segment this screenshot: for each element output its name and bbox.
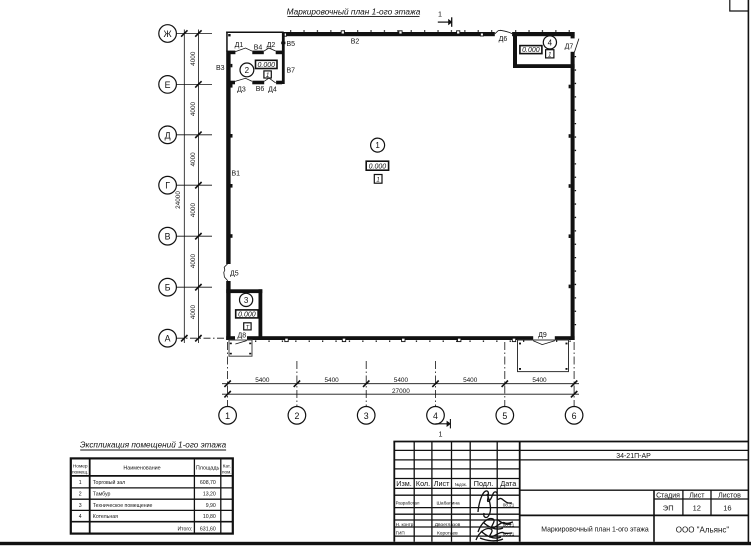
svg-text:2: 2 [79, 492, 82, 498]
svg-text:4000: 4000 [190, 152, 197, 167]
svg-text:Экспликация помещений 1-ого эт: Экспликация помещений 1-ого этажа [80, 441, 227, 450]
svg-text:10,80: 10,80 [203, 514, 216, 520]
svg-text:3: 3 [364, 411, 369, 421]
svg-text:12: 12 [693, 504, 701, 513]
svg-text:1: 1 [79, 480, 82, 486]
svg-text:помещ.: помещ. [72, 471, 89, 476]
svg-text:1: 1 [375, 141, 380, 150]
svg-text:Д7: Д7 [565, 44, 574, 51]
svg-text:ООО "Альянс": ООО "Альянс" [676, 526, 730, 535]
svg-text:5400: 5400 [463, 377, 478, 384]
svg-text:ГИП: ГИП [396, 531, 405, 536]
svg-text:Г: Г [165, 181, 170, 191]
svg-text:Изм.: Изм. [396, 479, 411, 488]
svg-text:В1: В1 [232, 171, 241, 178]
svg-text:631,60: 631,60 [200, 526, 216, 532]
svg-text:0.000: 0.000 [258, 62, 276, 69]
svg-text:4000: 4000 [190, 51, 197, 66]
svg-text:Площадь: Площадь [196, 466, 220, 472]
svg-text:Наименование: Наименование [123, 466, 160, 472]
svg-text:4000: 4000 [190, 101, 197, 116]
svg-text:Н. контр.: Н. контр. [396, 522, 415, 527]
svg-text:1: 1 [439, 429, 443, 438]
svg-text:1: 1 [438, 9, 442, 18]
svg-text:Д1: Д1 [235, 42, 244, 49]
svg-text:В3: В3 [216, 65, 225, 72]
svg-text:1: 1 [548, 51, 551, 58]
svg-text:4: 4 [79, 514, 82, 520]
svg-text:Е: Е [165, 80, 171, 90]
svg-text:Кол.: Кол. [416, 479, 430, 488]
svg-text:4000: 4000 [190, 305, 197, 320]
svg-text:Д9: Д9 [538, 332, 547, 339]
svg-text:Дата: Дата [500, 479, 516, 488]
svg-text:0.000: 0.000 [522, 47, 540, 54]
svg-text:4: 4 [433, 411, 438, 421]
svg-text:24000: 24000 [175, 191, 182, 209]
svg-text:4: 4 [548, 39, 553, 48]
svg-text:Итого:: Итого: [177, 526, 192, 532]
svg-text:Котельная: Котельная [93, 514, 118, 520]
svg-text:3: 3 [244, 296, 249, 305]
svg-text:Торговый зал: Торговый зал [93, 479, 125, 486]
svg-text:Подл.: Подл. [474, 479, 493, 488]
svg-text:Техническое помещение: Техническое помещение [93, 503, 153, 509]
svg-text:Маркировочный план 1-ого этажа: Маркировочный план 1-ого этажа [541, 526, 649, 534]
svg-text:Номер: Номер [73, 464, 88, 470]
svg-text:2: 2 [245, 66, 250, 75]
svg-text:Тамбур: Тамбур [93, 492, 111, 498]
svg-text:27000: 27000 [392, 388, 410, 395]
svg-text:В7: В7 [287, 68, 296, 75]
svg-text:Стадия: Стадия [656, 492, 680, 499]
svg-text:1: 1 [225, 411, 230, 421]
svg-text:В5: В5 [287, 41, 296, 48]
svg-text:0.000: 0.000 [369, 163, 387, 170]
svg-text:ЭП: ЭП [663, 504, 674, 513]
svg-text:4000: 4000 [190, 254, 197, 269]
svg-text:Маркировочный план 1-ого этажа: Маркировочный план 1-ого этажа [287, 6, 421, 16]
svg-text:Кат.: Кат. [223, 464, 231, 469]
svg-text:Д6: Д6 [499, 36, 508, 43]
svg-text:Т: Т [246, 325, 250, 331]
svg-text:Д: Д [165, 130, 171, 140]
svg-text:Д4: Д4 [268, 87, 277, 94]
svg-text:34-21П-АР: 34-21П-АР [616, 453, 651, 460]
svg-text:5400: 5400 [394, 377, 409, 384]
svg-text:Д3: Д3 [237, 87, 246, 94]
svg-text:608,70: 608,70 [200, 480, 216, 486]
svg-text:В4: В4 [254, 44, 263, 51]
svg-text:3: 3 [79, 503, 82, 509]
svg-text:А: А [165, 334, 171, 344]
svg-text:Шабалина: Шабалина [437, 501, 460, 507]
svg-text:16: 16 [723, 504, 731, 513]
svg-text:Ж: Ж [164, 29, 172, 39]
svg-text:1: 1 [266, 72, 269, 79]
svg-text:1: 1 [376, 176, 379, 183]
svg-text:Д5: Д5 [230, 270, 239, 277]
svg-text:Коротаев: Коротаев [437, 531, 458, 537]
svg-text:Лист: Лист [689, 492, 705, 499]
svg-text:5400: 5400 [532, 377, 547, 384]
svg-text:В: В [165, 232, 171, 242]
svg-text:Д8: Д8 [237, 333, 246, 340]
svg-text:9,90: 9,90 [206, 503, 216, 509]
svg-text:5400: 5400 [324, 377, 339, 384]
svg-text:В6: В6 [256, 86, 265, 93]
svg-text:Разработал: Разработал [396, 501, 420, 506]
svg-text:Лист: Лист [434, 479, 450, 488]
svg-text:08.21: 08.21 [503, 532, 515, 537]
svg-text:Д2: Д2 [267, 42, 276, 49]
svg-text:пом.: пом. [222, 470, 231, 475]
svg-text:Б: Б [165, 283, 171, 293]
svg-text:Двоеглазов: Двоеглазов [435, 522, 461, 528]
svg-text:№док.: №док. [455, 482, 467, 487]
svg-text:Листов: Листов [718, 492, 741, 499]
svg-text:6: 6 [572, 411, 577, 421]
svg-text:5: 5 [502, 411, 507, 421]
svg-text:В2: В2 [351, 39, 360, 46]
svg-text:2: 2 [294, 411, 299, 421]
svg-text:13,20: 13,20 [203, 492, 216, 498]
svg-text:0.000: 0.000 [238, 311, 256, 318]
svg-text:4000: 4000 [190, 203, 197, 218]
svg-text:5400: 5400 [255, 377, 270, 384]
